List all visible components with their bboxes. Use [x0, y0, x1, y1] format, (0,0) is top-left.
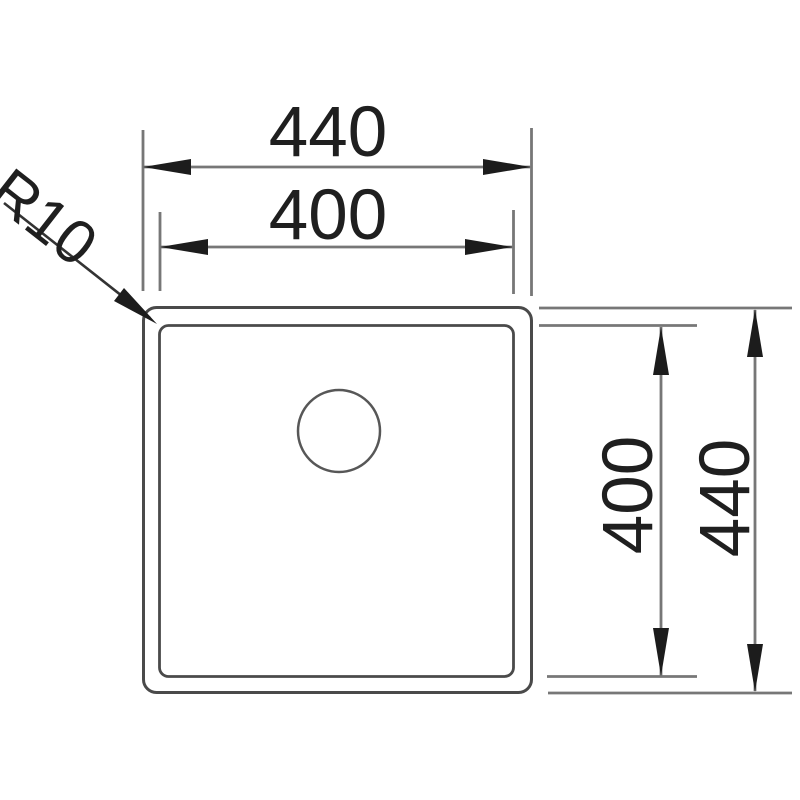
arrow-outer-width-left	[143, 159, 191, 175]
arrow-outer-width-right	[483, 159, 531, 175]
label-outer-height: 440	[686, 439, 765, 557]
dimension-lines-group	[143, 128, 792, 693]
sink-outer-outline	[144, 308, 532, 693]
drain-hole	[298, 390, 380, 472]
arrow-radius-leader	[114, 288, 157, 324]
drawing-svg: 440 400 400 440 R10	[0, 0, 800, 800]
sink-outline-group	[144, 308, 532, 693]
arrow-inner-width-left	[160, 239, 208, 255]
arrow-outer-height-bottom	[747, 644, 763, 692]
label-corner-radius: R10	[0, 156, 109, 280]
sink-dimension-diagram: 440 400 400 440 R10	[0, 0, 800, 800]
label-inner-height: 400	[589, 436, 668, 554]
drain-group	[298, 390, 380, 472]
arrow-outer-height-top	[747, 309, 763, 357]
label-outer-width: 440	[269, 93, 387, 172]
arrow-inner-height-bottom	[653, 628, 669, 676]
arrowheads-group	[114, 159, 763, 692]
arrow-inner-height-top	[653, 327, 669, 375]
label-inner-width: 400	[269, 176, 387, 255]
sink-inner-outline	[160, 326, 514, 677]
arrow-inner-width-right	[465, 239, 513, 255]
